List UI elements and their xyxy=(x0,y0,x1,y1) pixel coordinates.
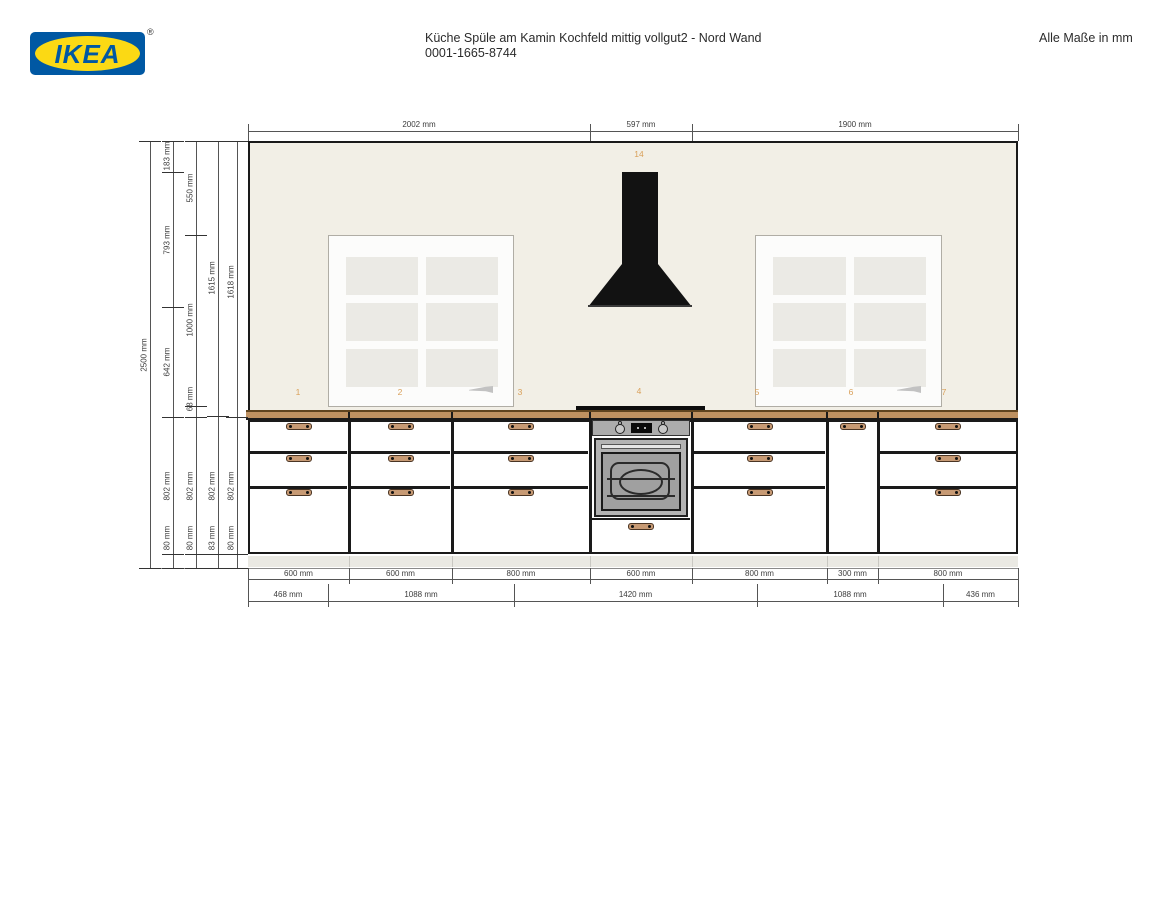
dimension-tick xyxy=(226,417,248,418)
handle-end xyxy=(391,491,394,494)
dimension-label: 802 mm xyxy=(208,472,217,501)
plinth-joint xyxy=(349,556,350,567)
dimension-label: 802 mm xyxy=(227,472,236,501)
handle-end xyxy=(843,425,846,428)
dimension-label: 1088 mm xyxy=(404,590,437,599)
handle-end xyxy=(648,525,651,528)
dimension-label: 83 mm xyxy=(208,526,217,550)
handle-end xyxy=(511,491,514,494)
oven-display-dot xyxy=(637,427,639,429)
handle-end xyxy=(289,457,292,460)
oven-knob-notch xyxy=(661,421,665,425)
dimension-tick xyxy=(349,568,350,584)
plinth xyxy=(248,556,1018,567)
dimension-label: 1420 mm xyxy=(619,590,652,599)
dimension-tick xyxy=(1018,584,1019,607)
oven-pot xyxy=(619,469,663,495)
handle-end xyxy=(289,491,292,494)
item-number: 14 xyxy=(634,149,643,159)
dimension-tick xyxy=(226,568,248,569)
window-pane xyxy=(854,349,927,387)
drawer-divider xyxy=(454,451,588,454)
window-handle xyxy=(469,386,493,393)
dimension-label: 1618 mm xyxy=(227,265,236,298)
window-pane xyxy=(346,257,418,295)
window-pane xyxy=(426,257,498,295)
dimension-label: 80 mm xyxy=(186,526,195,550)
handle-end xyxy=(391,457,394,460)
window-pane xyxy=(773,303,846,341)
cabinet-divider xyxy=(589,420,592,554)
dimension-tick xyxy=(139,568,161,569)
drawer-handle xyxy=(747,489,773,496)
dimension-tick xyxy=(162,417,184,418)
dimension-line xyxy=(237,141,238,568)
handle-end xyxy=(289,425,292,428)
dimension-tick xyxy=(248,124,249,141)
handle-end xyxy=(528,457,531,460)
handle-end xyxy=(750,425,753,428)
drawer-handle xyxy=(747,455,773,462)
countertop-joint xyxy=(451,412,453,420)
drawer-handle xyxy=(388,423,414,430)
oven-knob-notch xyxy=(618,421,622,425)
oven-rack xyxy=(607,495,675,497)
floor-line xyxy=(140,568,1018,569)
dimension-tick xyxy=(226,554,248,555)
oven-display-dot xyxy=(644,427,646,429)
dimension-label: 597 mm xyxy=(627,120,656,129)
window-pane xyxy=(426,303,498,341)
dimension-label: 600 mm xyxy=(386,569,415,578)
drawer-handle xyxy=(388,455,414,462)
countertop-joint xyxy=(589,412,591,420)
handle-end xyxy=(938,491,941,494)
dimension-label: 800 mm xyxy=(507,569,536,578)
hood-chimney xyxy=(622,172,658,266)
handle-end xyxy=(306,457,309,460)
dimension-tick xyxy=(943,584,944,607)
drawer-handle xyxy=(747,423,773,430)
handle-end xyxy=(767,457,770,460)
dimension-tick xyxy=(514,584,515,607)
hood-canopy-edge xyxy=(588,305,692,307)
handle-end xyxy=(938,425,941,428)
dimension-label: 300 mm xyxy=(838,569,867,578)
dimension-tick xyxy=(328,584,329,607)
drawer-handle xyxy=(935,455,961,462)
dimension-label: 600 mm xyxy=(627,569,656,578)
handle-end xyxy=(511,425,514,428)
handle-end xyxy=(408,425,411,428)
handle-end xyxy=(306,491,309,494)
dimension-tick xyxy=(1018,568,1019,584)
dimension-label: 80 mm xyxy=(227,526,236,550)
plinth-joint xyxy=(590,556,591,567)
window-pane xyxy=(854,257,927,295)
countertop-joint xyxy=(348,412,350,420)
dimension-tick xyxy=(590,568,591,584)
handle-end xyxy=(938,457,941,460)
drawer-handle xyxy=(508,455,534,462)
handle-end xyxy=(955,491,958,494)
oven-display xyxy=(631,423,652,433)
oven-rack xyxy=(607,478,675,480)
dimension-tick xyxy=(248,568,249,584)
dimension-tick xyxy=(162,554,184,555)
dimension-line xyxy=(196,141,197,568)
countertop-joint xyxy=(826,412,828,420)
dimension-tick xyxy=(692,568,693,584)
dimension-label: 800 mm xyxy=(934,569,963,578)
oven-knob xyxy=(658,424,668,434)
handle-end xyxy=(408,491,411,494)
dimension-label: 642 mm xyxy=(163,348,172,377)
dimension-tick xyxy=(878,568,879,584)
dimension-tick xyxy=(185,417,207,418)
oven-knob xyxy=(615,424,625,434)
dimension-line xyxy=(248,131,1018,132)
dimension-line xyxy=(173,141,174,568)
dimension-label: 550 mm xyxy=(186,174,195,203)
handle-end xyxy=(750,457,753,460)
drawer-handle xyxy=(508,489,534,496)
window-pane xyxy=(346,303,418,341)
handle-end xyxy=(860,425,863,428)
window-handle xyxy=(897,386,921,393)
dimension-label: 1088 mm xyxy=(833,590,866,599)
countertop xyxy=(246,410,1018,420)
dimension-tick xyxy=(757,584,758,607)
dimension-tick xyxy=(185,554,207,555)
dimension-tick xyxy=(185,141,207,142)
drawer-handle xyxy=(388,489,414,496)
drawer-divider xyxy=(880,451,1016,454)
dimension-label: 468 mm xyxy=(274,590,303,599)
plinth-joint xyxy=(452,556,453,567)
item-number: 6 xyxy=(849,387,854,397)
handle-end xyxy=(528,491,531,494)
window-pane xyxy=(773,349,846,387)
plinth-joint xyxy=(692,556,693,567)
drawer-divider xyxy=(351,451,450,454)
oven-door-handle xyxy=(601,444,681,449)
dimension-label: 793 mm xyxy=(163,226,172,255)
window-left xyxy=(328,235,514,407)
dimension-tick xyxy=(162,172,184,173)
dimension-label: 183 mm xyxy=(163,142,172,171)
dimension-tick xyxy=(162,568,184,569)
dimension-tick xyxy=(162,307,184,308)
plinth-joint xyxy=(827,556,828,567)
dimension-label: 800 mm xyxy=(745,569,774,578)
dimension-label: 436 mm xyxy=(966,590,995,599)
dimension-tick xyxy=(590,124,591,141)
countertop-joint xyxy=(877,412,879,420)
drawer-divider xyxy=(694,451,825,454)
dimension-label: 1900 mm xyxy=(838,120,871,129)
window-pane xyxy=(773,257,846,295)
dimension-tick xyxy=(185,235,207,236)
dimension-line xyxy=(248,579,1018,580)
drawer-handle xyxy=(935,423,961,430)
drawer-handle xyxy=(840,423,866,430)
drawer-handle xyxy=(628,523,654,530)
drawer-handle xyxy=(508,423,534,430)
window-pane xyxy=(346,349,418,387)
dimension-tick xyxy=(1018,124,1019,141)
handle-end xyxy=(631,525,634,528)
dimension-tick xyxy=(185,568,207,569)
item-number: 7 xyxy=(942,387,947,397)
drawer-divider xyxy=(250,451,347,454)
handle-end xyxy=(767,425,770,428)
handle-end xyxy=(528,425,531,428)
handle-end xyxy=(306,425,309,428)
oven-drawer-divider xyxy=(592,518,690,520)
handle-end xyxy=(750,491,753,494)
cabinet-divider xyxy=(826,420,829,554)
plinth-joint xyxy=(878,556,879,567)
item-number: 2 xyxy=(398,387,403,397)
item-number: 5 xyxy=(755,387,760,397)
dimension-tick xyxy=(248,584,249,607)
window-pane xyxy=(426,349,498,387)
oven-glass xyxy=(601,452,681,511)
dimension-tick xyxy=(139,141,161,142)
dimension-label: 68 mm xyxy=(186,387,195,411)
dimension-label: 600 mm xyxy=(284,569,313,578)
dimension-line xyxy=(218,141,219,568)
dimension-tick xyxy=(452,568,453,584)
handle-end xyxy=(955,457,958,460)
drawer-handle xyxy=(286,489,312,496)
window-right xyxy=(755,235,942,407)
dimension-label: 1000 mm xyxy=(186,303,195,336)
drawer-handle xyxy=(935,489,961,496)
handle-end xyxy=(408,457,411,460)
handle-end xyxy=(511,457,514,460)
dimension-tick xyxy=(827,568,828,584)
item-number: 4 xyxy=(637,386,642,396)
dimension-label: 1615 mm xyxy=(208,261,217,294)
item-number: 1 xyxy=(296,387,301,397)
dimension-label: 802 mm xyxy=(163,472,172,501)
dimension-tick xyxy=(692,124,693,141)
dimension-line xyxy=(248,601,1018,602)
handle-end xyxy=(767,491,770,494)
dimension-line xyxy=(150,141,151,568)
elevation-drawing: 2002 mm597 mm1900 mm2500 mm183 mm793 mm6… xyxy=(0,0,1165,900)
handle-end xyxy=(391,425,394,428)
drawer-handle xyxy=(286,455,312,462)
item-number: 3 xyxy=(518,387,523,397)
dimension-tick xyxy=(226,141,248,142)
countertop-joint xyxy=(691,412,693,420)
dimension-label: 2500 mm xyxy=(140,338,149,371)
dimension-label: 80 mm xyxy=(163,526,172,550)
handle-end xyxy=(955,425,958,428)
window-pane xyxy=(854,303,927,341)
drawer-handle xyxy=(286,423,312,430)
dimension-label: 802 mm xyxy=(186,472,195,501)
dimension-label: 2002 mm xyxy=(402,120,435,129)
